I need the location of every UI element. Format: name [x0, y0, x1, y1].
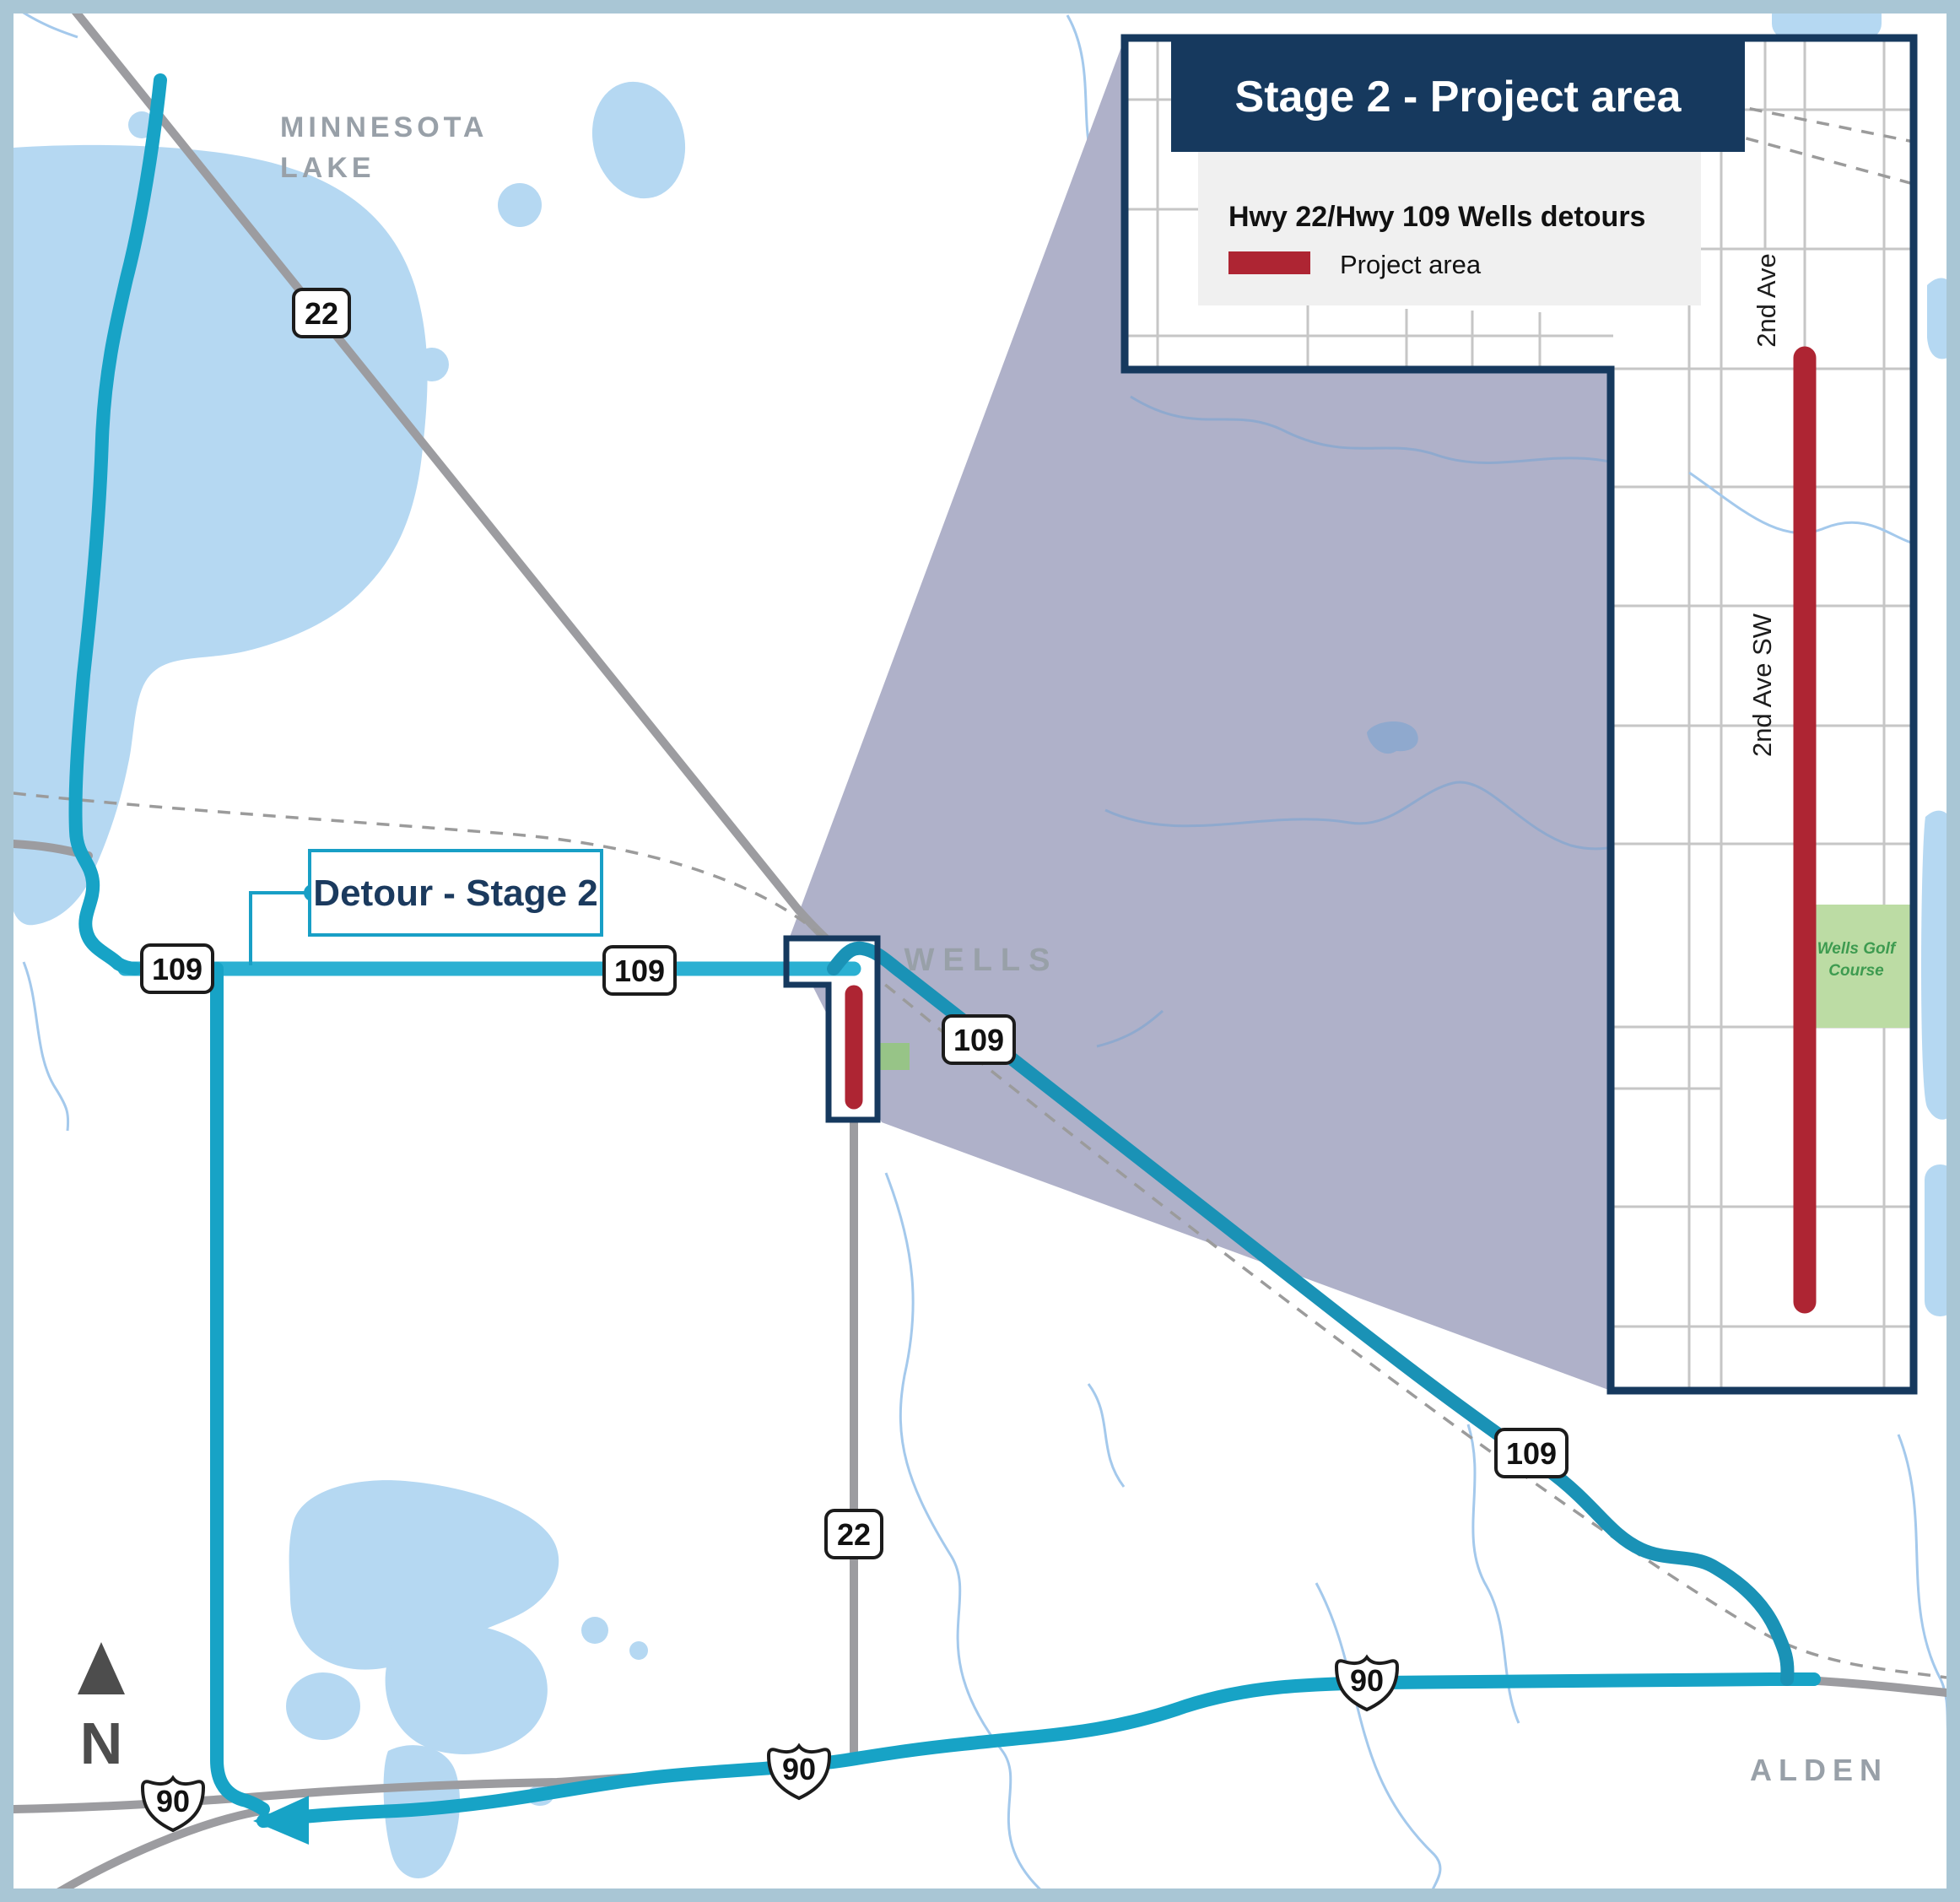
pond [286, 1672, 360, 1740]
legend-swatch-project-area [1228, 251, 1310, 274]
shield-hwy109-southeast: 109 [1496, 1429, 1567, 1477]
shield-label: 90 [782, 1752, 816, 1786]
detour-label-text: Detour - Stage 2 [313, 873, 597, 914]
pond [581, 1617, 608, 1644]
label-minnesota-lake-2: LAKE [280, 152, 375, 184]
pond [415, 348, 449, 381]
shield-label: 109 [953, 1023, 1004, 1057]
golf-label-2: Course [1828, 962, 1884, 980]
shield-label: 109 [1506, 1436, 1557, 1471]
label-alden: ALDEN [1750, 1753, 1888, 1787]
detour-map-page: 22 22 109 109 109 109 90 90 [0, 0, 1960, 1902]
shield-hwy22-south: 22 [826, 1510, 882, 1558]
shield-hwy109-wells: 109 [943, 1016, 1014, 1063]
legend-title: Hwy 22/Hwy 109 Wells detours [1228, 201, 1645, 233]
label-minnesota-lake-1: MINNESOTA [280, 111, 488, 143]
inset-legend: Hwy 22/Hwy 109 Wells detours Project are… [1198, 152, 1701, 305]
pond [498, 183, 542, 227]
north-label: N [80, 1710, 123, 1776]
shield-label: 109 [152, 952, 202, 986]
label-wells: WELLS [904, 943, 1059, 978]
shield-label: 22 [305, 296, 338, 331]
shield-hwy109-west: 109 [142, 945, 213, 992]
shield-hwy22-north: 22 [294, 289, 349, 337]
legend-item-label: Project area [1340, 250, 1482, 279]
shield-hwy109-mid: 109 [604, 947, 675, 994]
map-canvas: 22 22 109 109 109 109 90 90 [0, 0, 1960, 1902]
golf-label-1: Wells Golf [1817, 940, 1897, 958]
shield-label: 90 [1350, 1663, 1384, 1698]
shield-label: 109 [614, 954, 665, 988]
label-2nd-ave-sw: 2nd Ave SW [1747, 613, 1777, 757]
pond [629, 1641, 648, 1660]
shield-label: 90 [156, 1784, 190, 1818]
label-2nd-ave: 2nd Ave [1752, 253, 1781, 347]
inset-title: Stage 2 - Project area [1235, 73, 1682, 122]
shield-label: 22 [837, 1517, 871, 1552]
